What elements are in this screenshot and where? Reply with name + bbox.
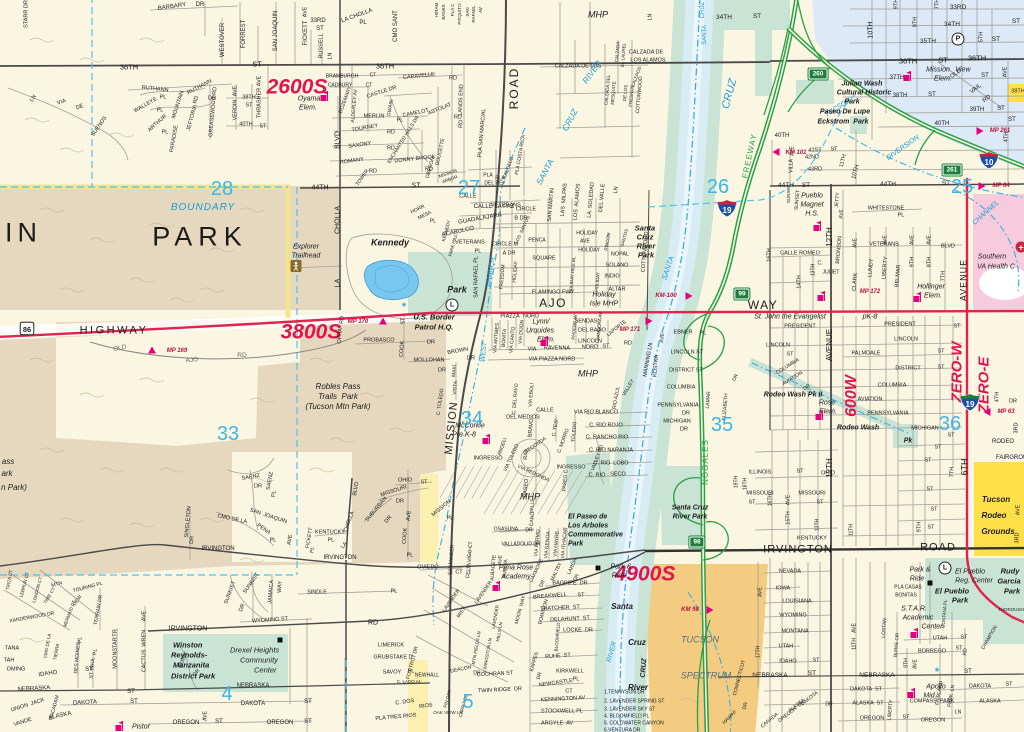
map-canvas[interactable]: STARR DRBARBARYDRWESTOVERFORRESTSAN JOAQ… <box>0 0 1024 732</box>
rodeo-grounds-area <box>974 462 1024 556</box>
map-base-layer <box>0 0 1024 732</box>
mission-corridor <box>420 474 438 562</box>
map-background <box>0 0 1024 732</box>
cholla-corridor <box>408 660 428 732</box>
yellow-block <box>1008 84 1024 102</box>
